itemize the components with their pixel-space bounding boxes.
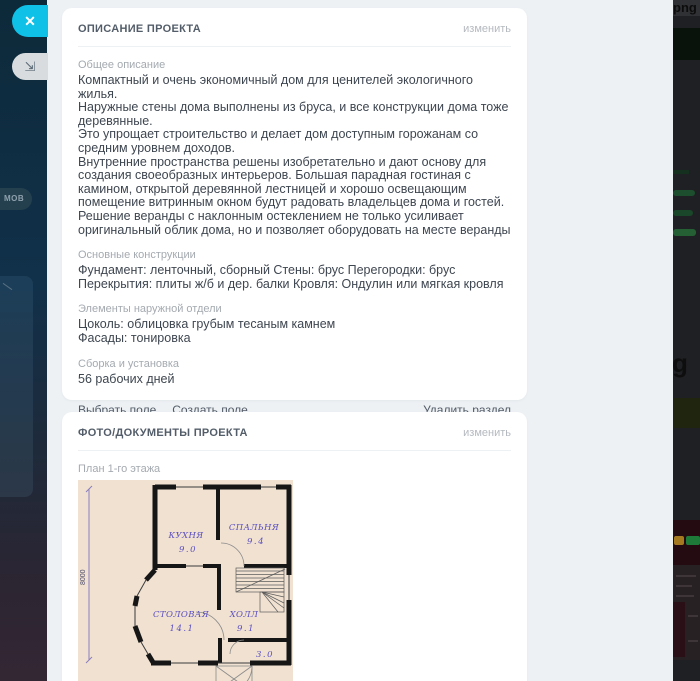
field-label: Общее описание xyxy=(78,59,511,71)
bg-text-line xyxy=(676,575,696,577)
edit-section-link[interactable]: изменить xyxy=(463,23,511,35)
collapse-button[interactable]: ⇲ xyxy=(12,53,48,80)
field-value: Фундамент: ленточный, сборный Стены: бру… xyxy=(78,264,511,291)
bg-green-dash xyxy=(673,210,693,216)
room-name: СПАЛЬНЯ xyxy=(229,523,279,533)
background-window-strip[interactable]: png g xyxy=(673,0,700,681)
field-value: Цоколь: облицовка грубым тесаным камнем … xyxy=(78,318,511,345)
dimension-label: 8000 xyxy=(80,569,87,585)
close-icon: ✕ xyxy=(24,13,36,30)
bg-olive-block xyxy=(673,398,700,428)
room-area: 3.0 xyxy=(256,650,274,660)
bg-text-line xyxy=(676,595,694,597)
bg-letter-fragment: g xyxy=(673,348,688,379)
slider-backdrop-rail[interactable]: ✕ ⇲ МОВ xyxy=(0,0,47,681)
field-label: План 1-го этажа xyxy=(78,463,511,475)
header-divider xyxy=(78,450,511,451)
bg-green-dash xyxy=(673,229,696,236)
field-value: Компактный и очень экономичный дом для ц… xyxy=(78,74,511,237)
background-page-panel xyxy=(0,276,33,497)
bg-green-button xyxy=(686,536,700,545)
truncated-tooltip-badge: МОВ xyxy=(0,188,32,210)
card-title: ОПИСАНИЕ ПРОЕКТА xyxy=(78,23,201,35)
card-header: ОПИСАНИЕ ПРОЕКТА изменить xyxy=(78,8,511,35)
field-general-description: Общее описание Компактный и очень эконом… xyxy=(78,59,511,237)
room-name: СТОЛОВАЯ xyxy=(153,610,209,620)
bg-orange-button xyxy=(674,536,684,545)
field-exterior-elements: Элементы наружной отдели Цоколь: облицов… xyxy=(78,303,511,345)
background-window-title: png xyxy=(673,0,700,16)
room-area: 9.1 xyxy=(237,624,255,634)
room-area: 9.4 xyxy=(247,537,265,547)
room-area: 14.1 xyxy=(170,624,195,634)
project-description-card: ОПИСАНИЕ ПРОЕКТА изменить Общее описание… xyxy=(62,8,527,400)
bg-green-dash xyxy=(673,190,695,196)
slider-content-area: ОПИСАНИЕ ПРОЕКТА изменить Общее описание… xyxy=(47,0,673,681)
field-assembly: Сборка и установка 56 рабочих дней xyxy=(78,358,511,387)
card-title: ФОТО/ДОКУМЕНТЫ ПРОЕКТА xyxy=(78,427,248,439)
bg-text-line xyxy=(676,585,692,587)
bg-green-dash xyxy=(673,170,689,174)
project-documents-card: ФОТО/ДОКУМЕНТЫ ПРОЕКТА изменить План 1-г… xyxy=(62,412,527,681)
field-floor-plan: План 1-го этажа 8000 xyxy=(78,463,511,681)
panel-tick-mark xyxy=(3,283,13,290)
card-header: ФОТО/ДОКУМЕНТЫ ПРОЕКТА изменить xyxy=(78,412,511,439)
field-label: Сборка и установка xyxy=(78,358,511,370)
bg-dark-green-block xyxy=(673,28,700,60)
edit-section-link[interactable]: изменить xyxy=(463,427,511,439)
field-value: 56 рабочих дней xyxy=(78,373,511,387)
bg-red-block xyxy=(673,602,685,657)
bg-text-line xyxy=(688,615,698,617)
room-area: 9.0 xyxy=(179,545,197,555)
close-button[interactable]: ✕ xyxy=(12,5,48,37)
field-label: Элементы наружной отдели xyxy=(78,303,511,315)
field-main-constructions: Основные конструкции Фундамент: ленточны… xyxy=(78,249,511,291)
collapse-to-corner-icon: ⇲ xyxy=(25,59,36,75)
header-divider xyxy=(78,46,511,47)
floor-plan-image[interactable]: 8000 xyxy=(78,480,293,681)
field-label: Основные конструкции xyxy=(78,249,511,261)
room-name: ХОЛЛ xyxy=(229,610,259,620)
bg-text-line xyxy=(688,640,698,642)
room-name: КУХНЯ xyxy=(167,531,203,541)
